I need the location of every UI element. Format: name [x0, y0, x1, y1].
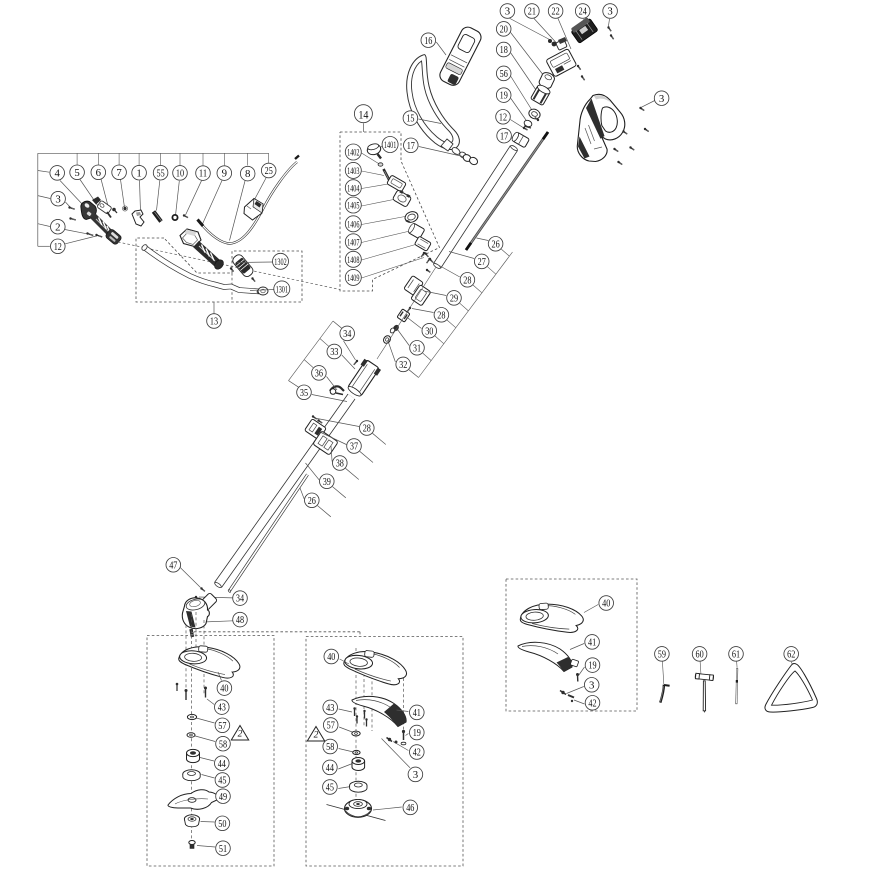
- svg-text:1402: 1402: [347, 148, 360, 158]
- svg-text:58: 58: [219, 738, 227, 750]
- svg-text:18: 18: [500, 44, 508, 56]
- svg-text:2: 2: [238, 730, 243, 740]
- svg-text:1401: 1401: [384, 140, 397, 150]
- svg-text:35: 35: [300, 387, 308, 399]
- svg-text:14: 14: [358, 107, 368, 121]
- svg-text:2: 2: [55, 221, 60, 233]
- svg-text:1407: 1407: [347, 237, 360, 247]
- svg-text:3: 3: [413, 769, 418, 781]
- svg-text:34: 34: [343, 328, 352, 340]
- svg-text:12: 12: [54, 241, 62, 253]
- svg-text:55: 55: [157, 167, 165, 179]
- svg-text:1409: 1409: [347, 273, 360, 283]
- svg-text:45: 45: [326, 782, 334, 794]
- svg-text:59: 59: [658, 649, 666, 661]
- svg-text:48: 48: [236, 614, 244, 626]
- svg-text:28: 28: [463, 274, 471, 286]
- svg-text:24: 24: [579, 6, 588, 18]
- svg-text:19: 19: [588, 660, 596, 672]
- svg-text:15: 15: [406, 113, 414, 125]
- svg-text:40: 40: [602, 598, 610, 610]
- svg-text:4: 4: [54, 168, 60, 180]
- svg-text:3: 3: [55, 193, 60, 205]
- svg-text:41: 41: [588, 637, 596, 649]
- svg-text:1302: 1302: [274, 257, 287, 267]
- svg-text:19: 19: [413, 727, 421, 739]
- svg-text:2: 2: [314, 731, 319, 741]
- svg-text:62: 62: [787, 649, 795, 661]
- svg-text:11: 11: [199, 168, 207, 180]
- svg-text:44: 44: [326, 762, 335, 774]
- svg-text:31: 31: [413, 342, 421, 354]
- svg-text:50: 50: [218, 818, 226, 830]
- svg-text:27: 27: [478, 256, 487, 268]
- svg-text:3: 3: [607, 6, 612, 18]
- svg-text:58: 58: [326, 741, 334, 753]
- svg-text:34: 34: [236, 593, 245, 605]
- svg-text:12: 12: [499, 111, 507, 123]
- svg-text:1: 1: [136, 167, 141, 179]
- svg-text:16: 16: [424, 35, 433, 47]
- svg-text:56: 56: [500, 68, 509, 80]
- svg-text:29: 29: [450, 293, 458, 305]
- svg-text:1403: 1403: [347, 166, 360, 176]
- svg-text:60: 60: [696, 649, 704, 661]
- svg-text:1404: 1404: [347, 183, 360, 193]
- svg-text:42: 42: [413, 747, 421, 759]
- svg-text:40: 40: [327, 651, 335, 663]
- svg-text:44: 44: [218, 758, 227, 770]
- svg-text:57: 57: [327, 720, 336, 732]
- svg-text:41: 41: [413, 707, 421, 719]
- svg-text:25: 25: [265, 165, 273, 177]
- svg-text:3: 3: [659, 93, 664, 105]
- svg-text:17: 17: [500, 130, 509, 142]
- svg-text:42: 42: [588, 697, 596, 709]
- svg-text:8: 8: [245, 168, 250, 180]
- svg-text:28: 28: [437, 309, 445, 321]
- svg-text:43: 43: [218, 702, 226, 714]
- svg-text:43: 43: [326, 702, 334, 714]
- svg-text:26: 26: [492, 238, 501, 250]
- svg-text:3: 3: [505, 6, 510, 18]
- svg-text:21: 21: [528, 6, 536, 18]
- svg-text:6: 6: [96, 167, 102, 179]
- svg-text:9: 9: [222, 168, 227, 180]
- svg-text:1408: 1408: [347, 255, 360, 265]
- svg-text:19: 19: [500, 90, 508, 102]
- svg-text:30: 30: [425, 325, 433, 337]
- svg-text:1405: 1405: [347, 201, 360, 211]
- svg-text:33: 33: [330, 346, 338, 358]
- svg-text:37: 37: [350, 441, 359, 453]
- svg-text:3: 3: [589, 679, 594, 691]
- svg-text:47: 47: [169, 559, 178, 571]
- svg-text:36: 36: [315, 368, 324, 380]
- svg-text:17: 17: [407, 140, 416, 152]
- svg-text:61: 61: [732, 649, 740, 661]
- svg-text:45: 45: [218, 775, 226, 787]
- svg-text:20: 20: [500, 24, 508, 36]
- svg-text:7: 7: [116, 167, 122, 179]
- svg-text:39: 39: [323, 476, 331, 488]
- svg-text:49: 49: [219, 791, 227, 803]
- svg-text:1406: 1406: [347, 219, 360, 229]
- svg-text:10: 10: [176, 168, 184, 180]
- svg-text:38: 38: [336, 458, 344, 470]
- svg-text:32: 32: [399, 359, 407, 371]
- svg-text:46: 46: [406, 802, 415, 814]
- svg-text:5: 5: [74, 167, 79, 179]
- svg-text:40: 40: [220, 683, 228, 695]
- svg-text:28: 28: [363, 423, 371, 435]
- svg-text:51: 51: [219, 843, 227, 855]
- svg-text:1301: 1301: [276, 285, 289, 295]
- svg-text:57: 57: [218, 720, 227, 732]
- svg-text:22: 22: [552, 6, 560, 18]
- svg-text:13: 13: [210, 316, 218, 328]
- svg-text:26: 26: [308, 495, 317, 507]
